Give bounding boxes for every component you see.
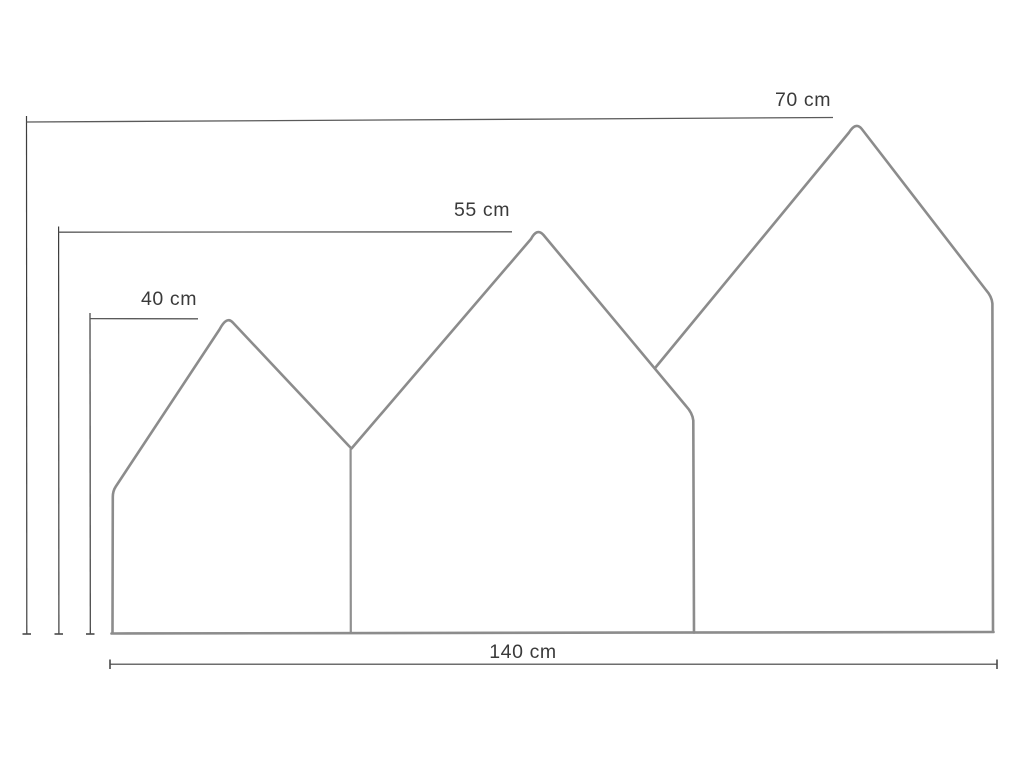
small-and-middle-house-outline [113,232,695,633]
drawing-canvas: 70 cm 55 cm 40 cm 140 cm [0,0,1024,768]
dimension-70cm-horizontal [27,118,834,123]
dimension-70cm [23,116,834,634]
bottom-edge-line [112,632,994,634]
label-140cm: 140 cm [489,641,557,663]
dimension-drawing: 70 cm 55 cm 40 cm 140 cm [0,0,1024,768]
label-70cm: 70 cm [775,89,831,111]
house-silhouette [112,126,994,634]
dimension-labels: 70 cm 55 cm 40 cm 140 cm [141,89,831,663]
dimension-55cm [55,227,513,635]
label-55cm: 55 cm [454,199,510,221]
dimension-40cm [86,313,198,634]
tall-house-outline [656,126,994,632]
label-40cm: 40 cm [141,288,197,310]
